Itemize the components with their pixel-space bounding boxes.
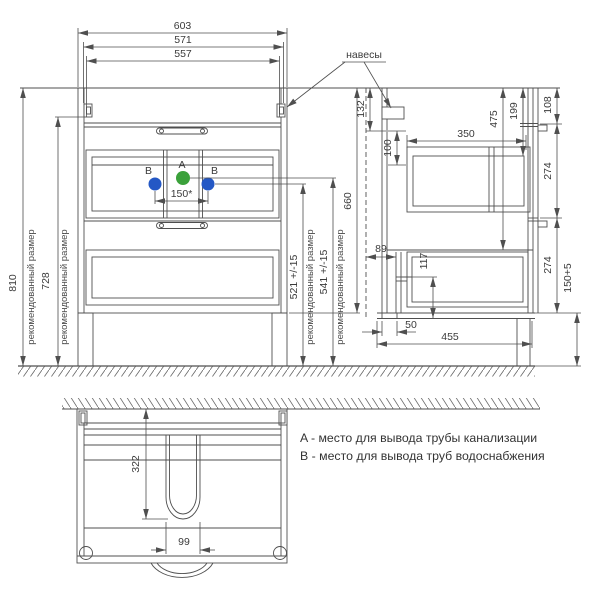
handle-bump-inner [157,563,207,574]
hangers-callout [287,62,391,108]
dim-hinge-hole-spacing: 100 [382,139,394,157]
dim-cutout-width: 99 [178,536,190,548]
siphon-cutout-inner [170,435,197,514]
point-b-label-left: B [145,165,152,177]
point-a-label: A [178,159,185,171]
leg-left [78,313,93,366]
dim-height-recommended: 810 [7,274,19,292]
top-view-dimensions [142,409,215,554]
wall-hatch [62,398,540,409]
water-outlet-marker-left [149,178,162,191]
dim-pipe-spacing: 150* [171,188,193,200]
dim-top-panel-height: 108 [542,96,554,114]
drawer-handle-top [157,128,208,134]
drawer-handle-bottom [157,223,208,229]
dim-wall-recess-depth: 89 [375,243,387,255]
side-handle-top [538,125,547,131]
side-front-leg [517,319,530,367]
dim-recess-height: 117 [418,252,430,269]
legend-sewer-line: A - место для вывода трубы канализации [300,431,537,445]
legend-water-line: B - место для вывода труб водоснабжения [300,449,545,463]
vanity-dimension-drawing: 603 571 557 810 рекомендованный размер 7… [0,0,600,600]
dim-body-height: 660 [342,192,354,210]
foot-left [80,547,93,560]
water-outlet-marker-right [202,178,215,191]
recommended-size-label-1: рекомендованный размер [26,229,37,344]
recommended-size-label-4: рекомендованный размер [335,229,346,344]
recommended-size-label-2: рекомендованный размер [59,229,70,344]
point-b-label-right: B [211,165,218,177]
hanger-bracket [382,107,404,119]
dim-body-depth: 455 [441,331,459,343]
leg-right [272,313,287,366]
dim-back-offset: 50 [405,319,417,331]
top-view-cabinet [62,398,540,577]
dim-width-total: 603 [174,20,192,32]
dim-height-hinge-recommended: 728 [40,272,52,290]
dim-cutout-depth: 322 [130,455,142,473]
handle-bump-outer [151,563,213,577]
technical-drawing-page: 603 571 557 810 рекомендованный размер 7… [0,0,600,600]
dim-sewer-outlet-height: 541 +/-15 [318,250,330,295]
legend: A - место для вывода трубы канализации B… [300,431,545,463]
side-handle-bottom [538,221,547,227]
dim-inner-height: 475 [488,110,500,128]
ground-line [18,366,535,377]
hangers-label: навесы [346,49,382,61]
dim-hinge-top-offset: 132 [355,100,367,118]
dim-legs-height: 150+5 [562,263,574,293]
dim-width-drawer: 557 [174,48,192,60]
foot-right [274,547,287,560]
dim-water-outlet-height: 521 +/-15 [288,255,300,300]
sewer-outlet-marker [176,171,190,185]
dim-drawer-depth: 350 [457,128,475,140]
dim-lower-drawer-front: 274 [542,256,554,274]
siphon-cutout-outer [166,435,200,519]
dim-top-section: 199 [508,102,520,120]
recommended-size-label-3: рекомендованный размер [305,229,316,344]
dim-width-hinges: 571 [174,34,192,46]
dim-upper-drawer-front: 274 [542,162,554,180]
front-view-cabinet [78,88,287,366]
